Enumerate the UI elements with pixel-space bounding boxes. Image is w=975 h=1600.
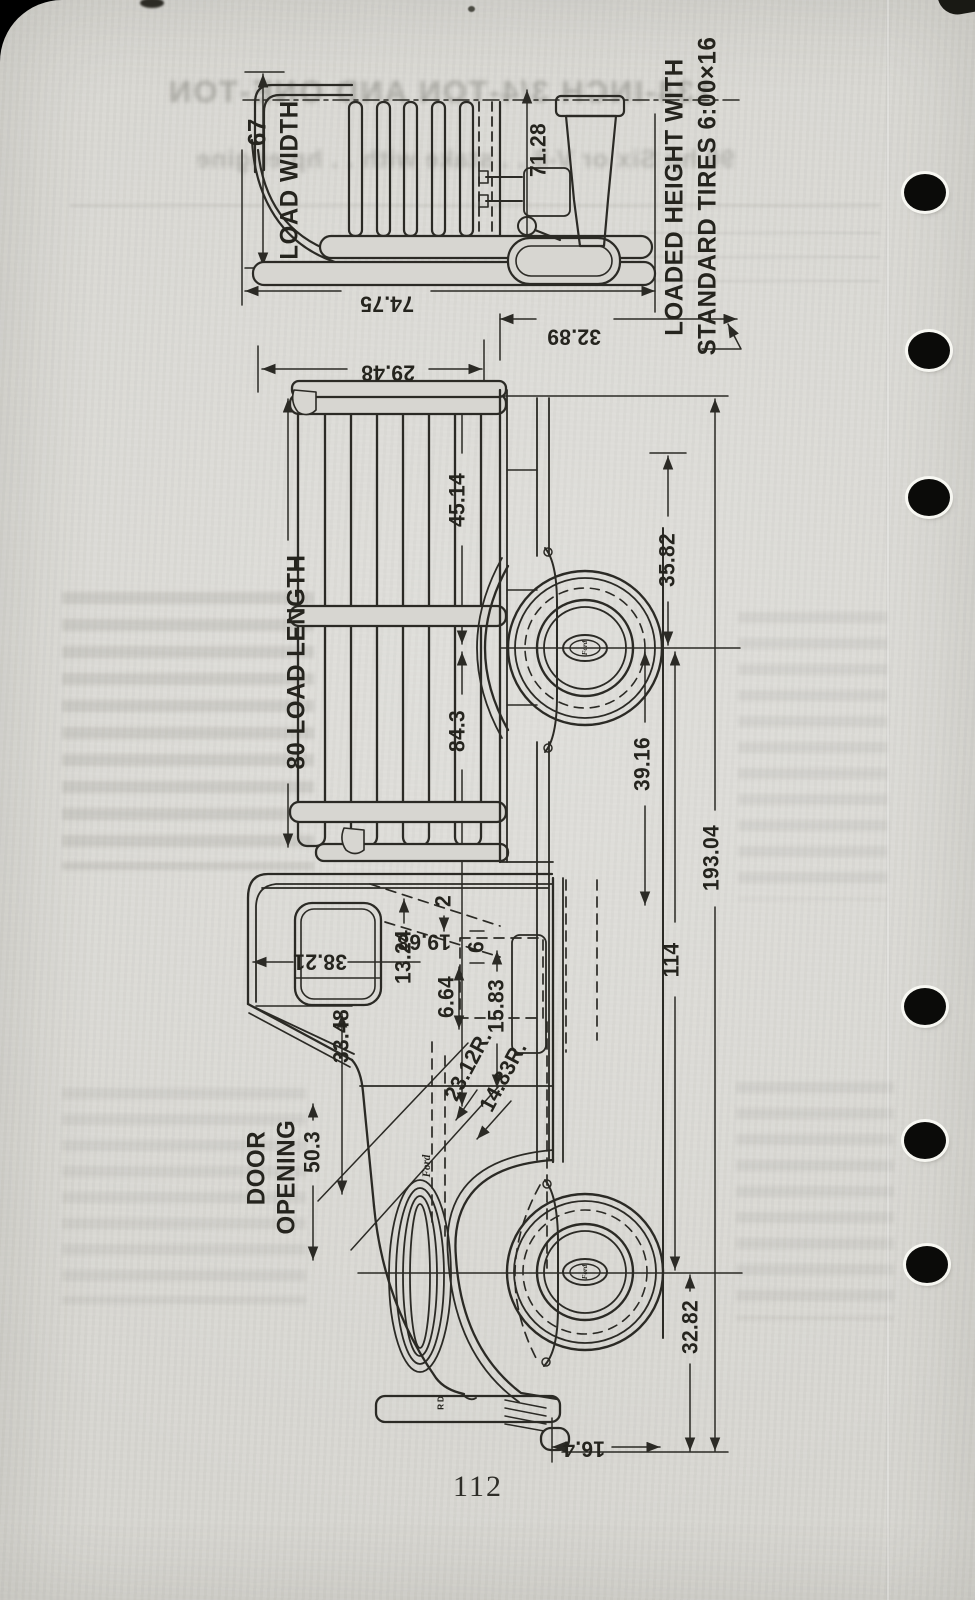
dim-label-84-3: 84.3	[445, 710, 470, 752]
dim-label-50-3: 50.3	[300, 1131, 325, 1173]
dim-label-114: 114	[659, 943, 684, 978]
binder-hole	[908, 479, 950, 516]
dim-label-2: 2	[431, 895, 456, 907]
binder-hole	[904, 1122, 946, 1159]
scanned-manual-page: { "page": { "number": "112" }, "diagram"…	[0, 0, 975, 1600]
page-number: 112	[453, 1470, 503, 1504]
dim-label-33-48: 33.48	[329, 1009, 354, 1063]
ford-script-grille: Ford	[421, 1155, 434, 1178]
dim-label-32-82: 32.82	[678, 1300, 703, 1354]
dim-label-71-28: 71.28	[526, 123, 551, 177]
dim-label-door: DOOR	[242, 1131, 271, 1205]
dim-label-45-14: 45.14	[445, 473, 470, 527]
binder-hole	[904, 988, 946, 1025]
dim-label-load-width: LOAD WIDTH	[275, 100, 304, 259]
dim-label-193-04: 193.04	[699, 825, 724, 891]
dim-label-38-21: 38.21	[293, 948, 347, 973]
dim-label-15-83: 15.83	[484, 979, 509, 1033]
dim-label-6: 6	[464, 941, 489, 953]
dim-label-load-width-value: 67	[243, 118, 272, 146]
rd-mark: RD	[436, 1394, 445, 1410]
binder-hole	[906, 1246, 948, 1283]
ford-script-front-hubcap: Ford	[581, 1265, 589, 1279]
truck-dimension-drawing	[0, 0, 975, 1600]
dim-label-32-89: 32.89	[547, 323, 601, 348]
dim-label-16-4: 16.4	[563, 1435, 605, 1460]
dim-label-19-68: 19.68	[397, 928, 451, 953]
dim-label-35-82: 35.82	[655, 533, 680, 587]
dim-label-29-48: 29.48	[361, 359, 415, 384]
binder-hole	[908, 332, 950, 369]
page-crease	[886, 0, 890, 1600]
dim-label-opening: OPENING	[272, 1120, 301, 1235]
dim-label-6-64: 6.64	[434, 976, 459, 1018]
ford-script-rear-hubcap: Ford	[581, 641, 589, 655]
ink-speck	[468, 6, 475, 12]
dim-label-load-length: 80 LOAD LENGTH	[282, 554, 311, 769]
dim-label-39-16: 39.16	[630, 737, 655, 791]
dim-label-loaded-height-2: STANDARD TIRES 6:00×16	[693, 37, 722, 356]
dim-label-74-75: 74.75	[360, 290, 414, 315]
dim-label-loaded-height-1: LOADED HEIGHT WITH	[660, 58, 689, 335]
binder-hole	[904, 174, 946, 211]
